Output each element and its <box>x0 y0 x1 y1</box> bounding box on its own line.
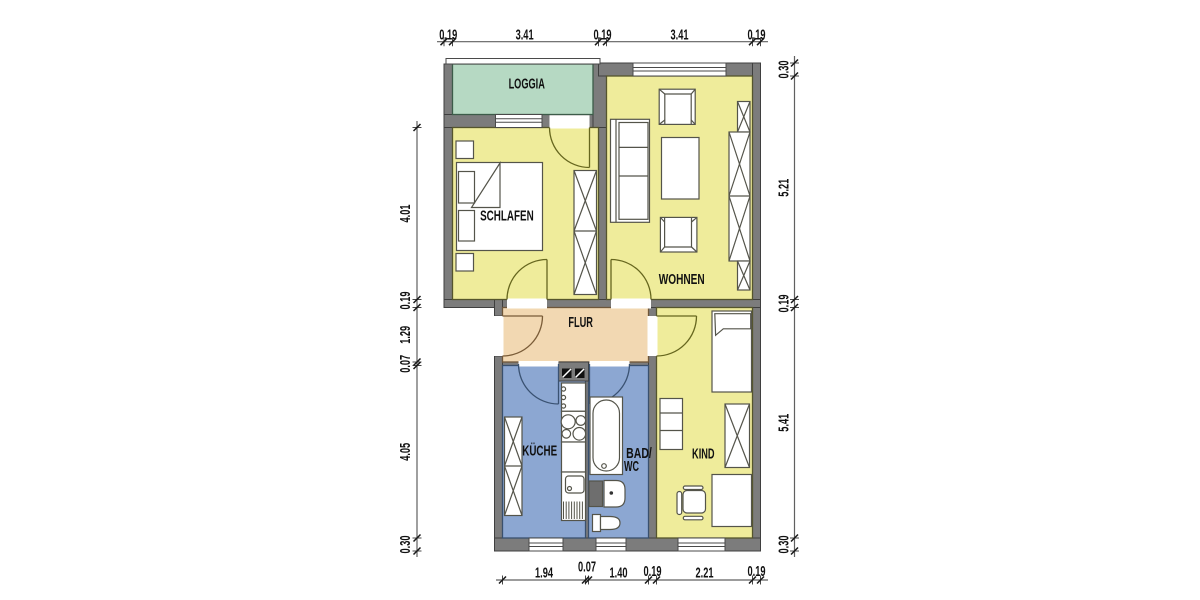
svg-text:4.05: 4.05 <box>397 443 414 461</box>
svg-text:0.19: 0.19 <box>397 291 414 309</box>
svg-text:1.94: 1.94 <box>535 564 553 581</box>
svg-text:3.41: 3.41 <box>670 26 688 43</box>
svg-text:0.19: 0.19 <box>747 26 765 43</box>
svg-text:WOHNEN: WOHNEN <box>659 270 705 288</box>
svg-text:5.21: 5.21 <box>775 179 792 197</box>
svg-text:SCHLAFEN: SCHLAFEN <box>480 207 534 224</box>
svg-text:1.29: 1.29 <box>397 326 414 344</box>
svg-text:0.19: 0.19 <box>439 26 457 43</box>
svg-text:0.19: 0.19 <box>593 26 611 43</box>
svg-text:FLUR: FLUR <box>568 314 593 331</box>
svg-text:KIND: KIND <box>692 445 715 462</box>
svg-text:3.41: 3.41 <box>516 26 534 43</box>
svg-text:0.07: 0.07 <box>397 355 414 373</box>
svg-text:KÜCHE: KÜCHE <box>522 441 557 459</box>
svg-text:2.21: 2.21 <box>695 564 713 581</box>
svg-text:0.30: 0.30 <box>775 535 792 553</box>
svg-text:4.01: 4.01 <box>397 204 414 222</box>
svg-text:0.07: 0.07 <box>578 558 596 575</box>
svg-text:0.19: 0.19 <box>747 563 765 580</box>
svg-text:5.41: 5.41 <box>775 414 792 432</box>
svg-text:1.40: 1.40 <box>609 564 627 581</box>
svg-text:0.19: 0.19 <box>643 563 661 580</box>
svg-text:LOGGIA: LOGGIA <box>509 75 545 92</box>
svg-text:0.30: 0.30 <box>775 60 792 78</box>
svg-text:0.19: 0.19 <box>775 294 792 312</box>
svg-text:WC: WC <box>624 458 639 475</box>
svg-text:0.30: 0.30 <box>397 535 414 553</box>
